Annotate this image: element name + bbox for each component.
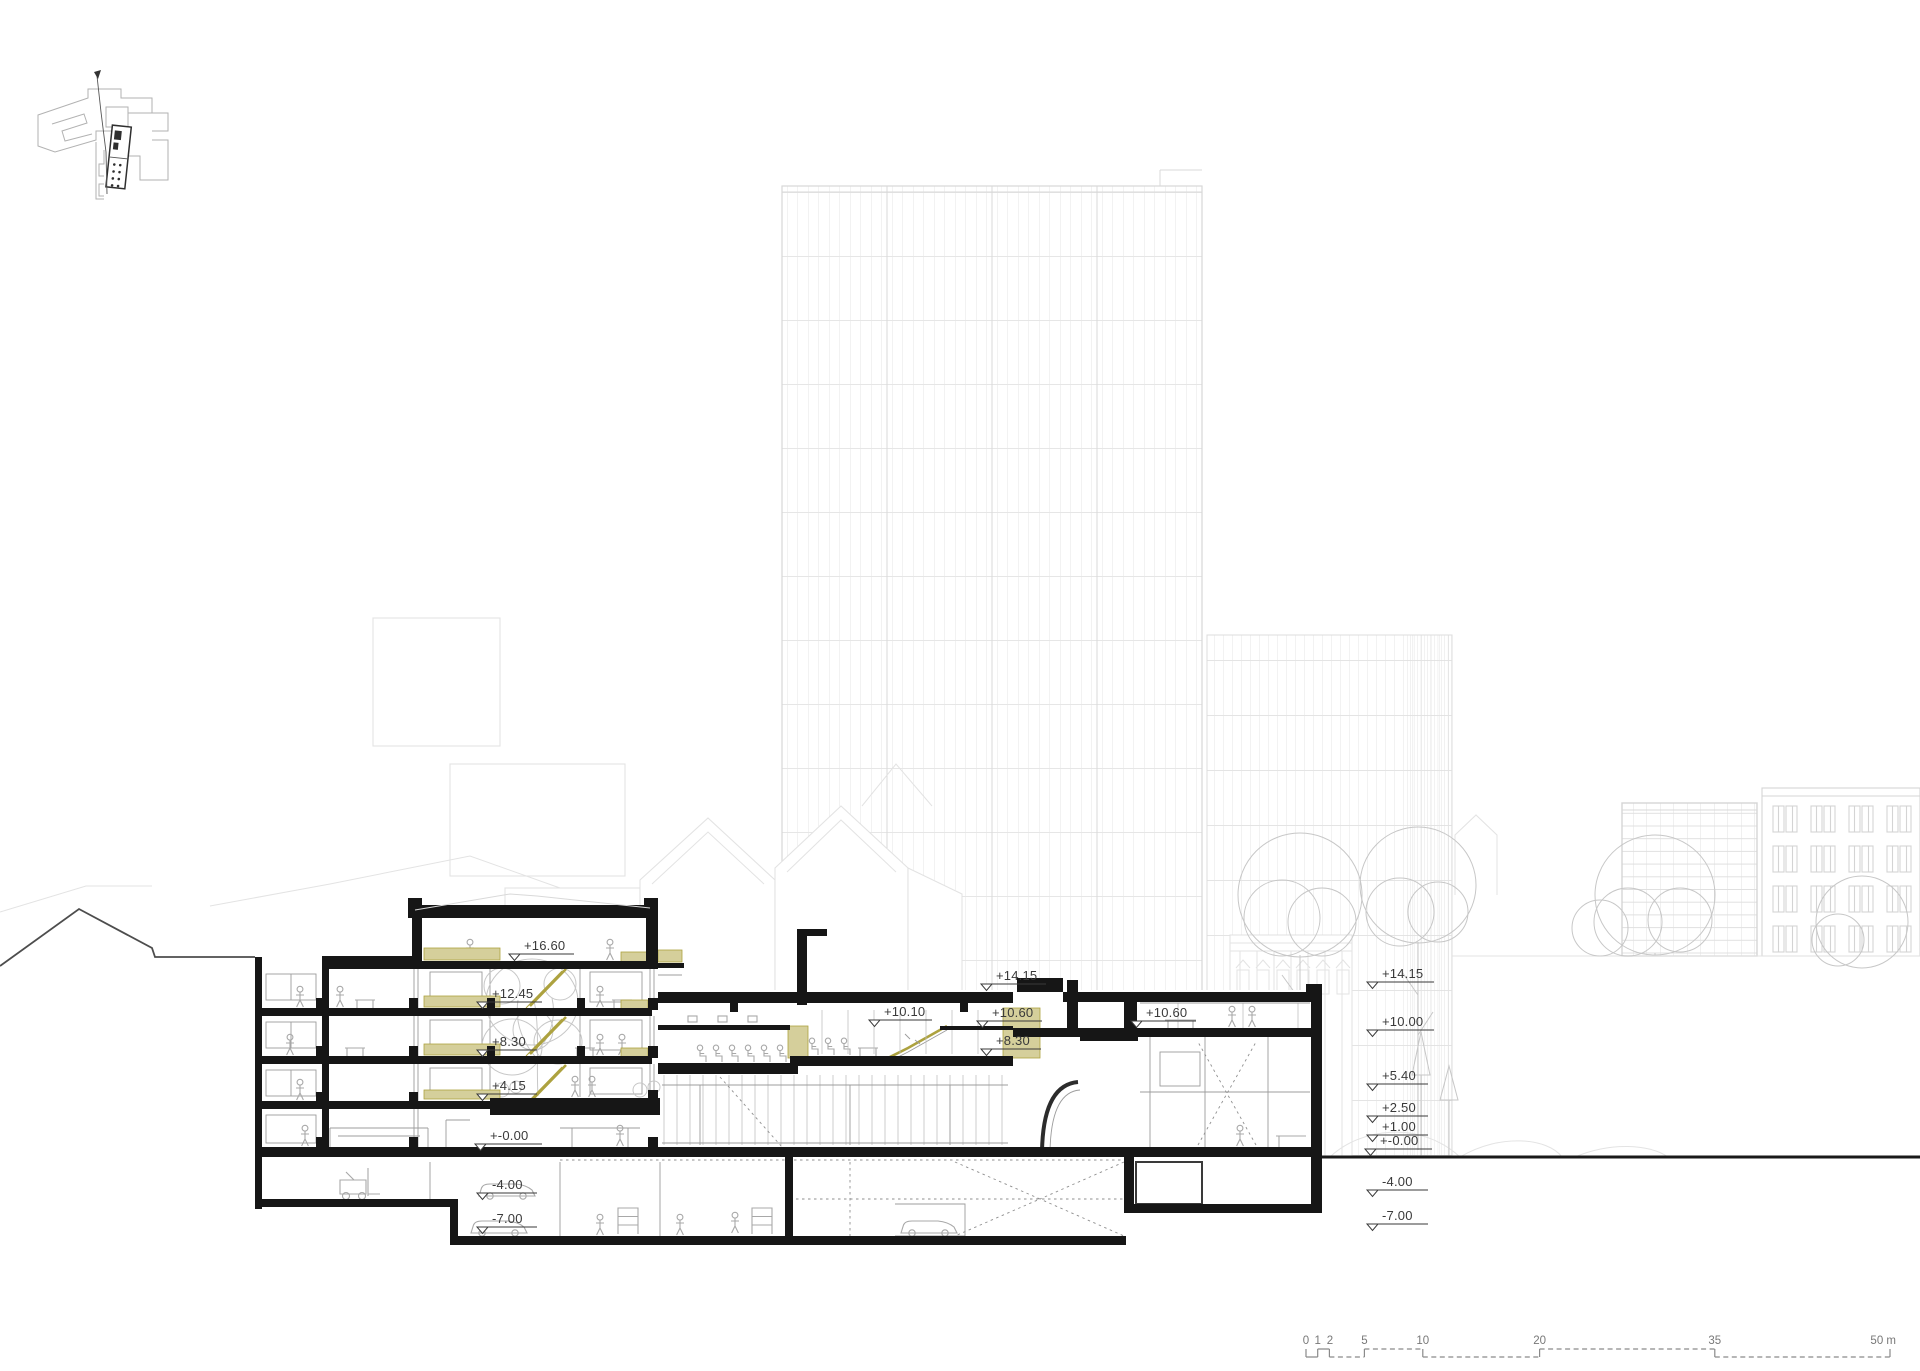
scale-bar: 0 1 2 5 10 20 35 50 m (1303, 1335, 1896, 1357)
elevation-label: -4.00 (1382, 1174, 1413, 1189)
scale-tick-label: 0 (1303, 1335, 1309, 1347)
section-drawing-canvas: +16.60 +12.45 +8.30 +4.15 +-0.00 -4.00 -… (0, 0, 1920, 1371)
elevation-label: -7.00 (1382, 1208, 1413, 1223)
elevation-label: +10.60 (992, 1005, 1033, 1020)
elevation-label: +8.30 (996, 1033, 1030, 1048)
elevation-label: +-0.00 (1380, 1133, 1418, 1148)
elevation-label: -4.00 (492, 1177, 523, 1192)
scale-end-label: 50 m (1870, 1335, 1896, 1347)
scale-tick-label: 35 (1708, 1335, 1721, 1347)
section-cut-arrow-icon (94, 70, 101, 79)
elevation-marker: -4.00 (1367, 1174, 1428, 1197)
background-block (373, 618, 500, 746)
elevation-label: +16.60 (524, 938, 565, 953)
elevation-label: +10.60 (1146, 1005, 1187, 1020)
scale-tick-label: 2 (1327, 1335, 1333, 1347)
scale-tick-label: 20 (1533, 1335, 1546, 1347)
site-plan-highlighted-building (106, 125, 131, 189)
background-glass-building (1622, 803, 1757, 956)
elevation-label: +5.40 (1382, 1068, 1416, 1083)
elevation-label: +2.50 (1382, 1100, 1416, 1115)
elevation-label: -7.00 (492, 1211, 523, 1226)
elevation-marker: -7.00 (1367, 1208, 1428, 1231)
scale-tick-label: 1 (1314, 1335, 1320, 1347)
elevation-label: +14.15 (996, 968, 1037, 983)
elevation-label: +14.15 (1382, 966, 1423, 981)
architectural-section-sheet: +16.60 +12.45 +8.30 +4.15 +-0.00 -4.00 -… (0, 0, 1920, 1371)
elevation-label: +12.45 (492, 986, 533, 1001)
elevation-label: +10.10 (884, 1004, 925, 1019)
background-block (450, 764, 625, 876)
site-key-plan (38, 70, 168, 199)
scale-tick-label: 10 (1416, 1335, 1429, 1347)
elevation-label: +10.00 (1382, 1014, 1423, 1029)
scale-tick-label: 5 (1361, 1335, 1367, 1347)
elevation-label: +-0.00 (490, 1128, 528, 1143)
elevation-label: +8.30 (492, 1034, 526, 1049)
elevation-label: +4.15 (492, 1078, 526, 1093)
elevation-label: +1.00 (1382, 1119, 1416, 1134)
background-residential-building (1762, 788, 1920, 956)
